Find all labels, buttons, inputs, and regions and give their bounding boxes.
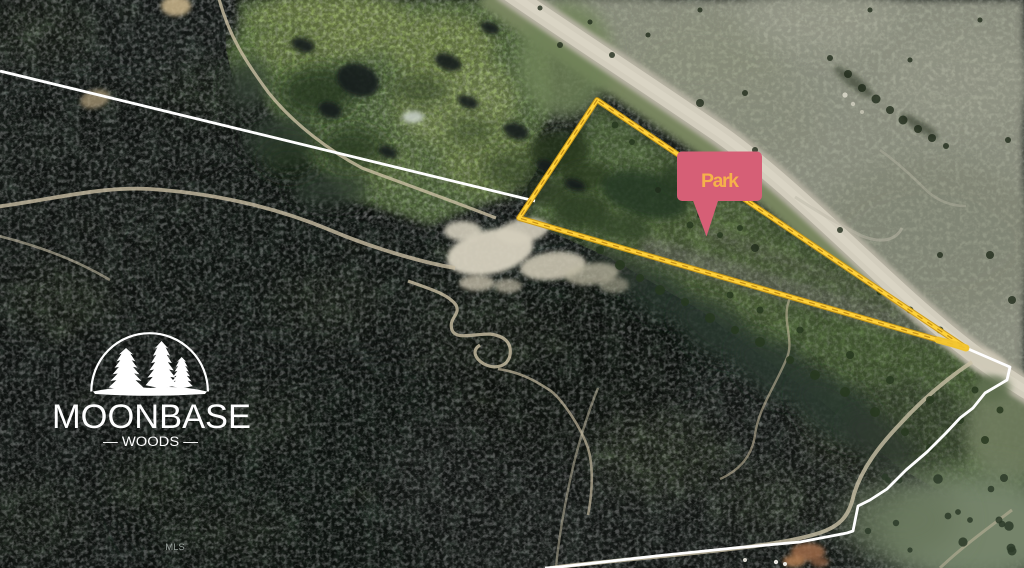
svg-text:— WOODS —: — WOODS — [103, 434, 199, 450]
svg-text:MOONBASE: MOONBASE [52, 398, 251, 436]
svg-text:MLS: MLS [165, 542, 185, 553]
svg-text:Park: Park [701, 170, 739, 192]
